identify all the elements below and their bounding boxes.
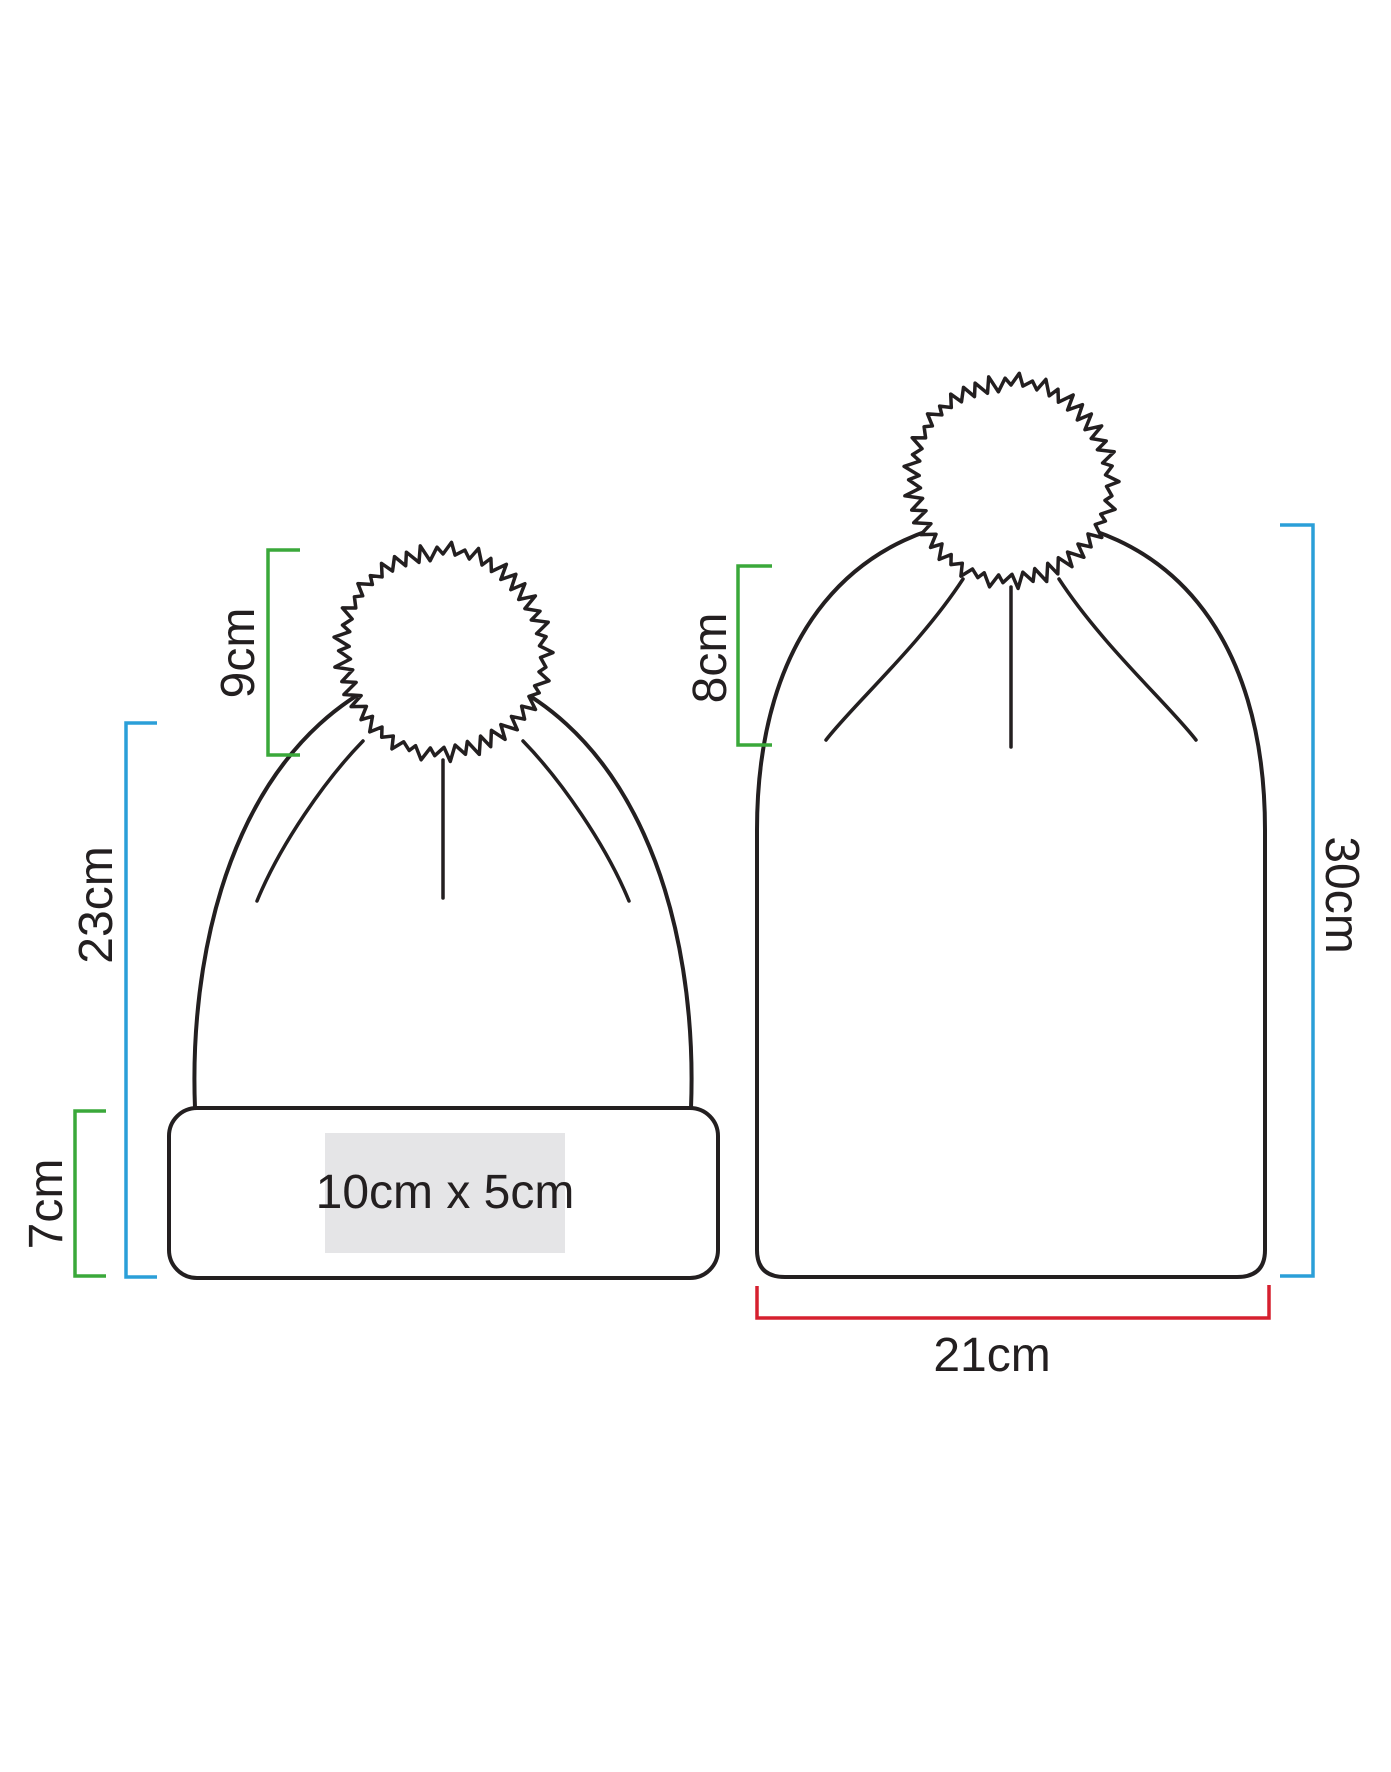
right-pom-height-bracket bbox=[738, 566, 772, 745]
left-body-height-label: 23cm bbox=[72, 825, 122, 985]
right-beanie bbox=[757, 373, 1265, 1277]
right-body-height-bracket bbox=[1280, 525, 1313, 1276]
right-width-bracket bbox=[757, 1285, 1269, 1318]
diagram-canvas bbox=[0, 0, 1391, 1772]
left-cuff-height-label: 7cm bbox=[22, 1124, 72, 1284]
right-width-label: 21cm bbox=[912, 1331, 1072, 1381]
print-area-label: 10cm x 5cm bbox=[295, 1168, 595, 1218]
left-body-height-bracket bbox=[126, 723, 157, 1277]
left-pom-height-bracket bbox=[268, 550, 300, 755]
right-pom-height-label: 8cm bbox=[686, 578, 736, 738]
right-body-height-label: 30cm bbox=[1316, 815, 1366, 975]
left-cuff-height-bracket bbox=[75, 1111, 106, 1276]
beanie-size-diagram: 9cm 23cm 7cm 10cm x 5cm 8cm 30cm 21cm bbox=[0, 0, 1391, 1772]
left-pom-height-label: 9cm bbox=[214, 573, 264, 733]
